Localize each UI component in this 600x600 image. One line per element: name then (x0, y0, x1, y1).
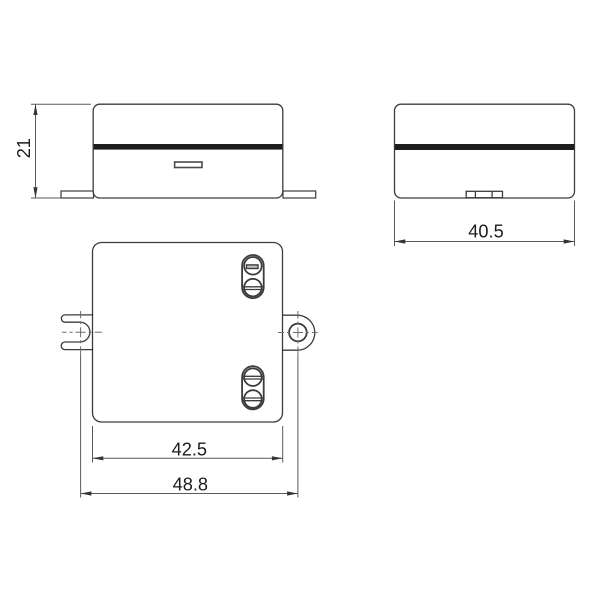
svg-text:48.8: 48.8 (173, 474, 208, 494)
svg-text:42.5: 42.5 (172, 440, 207, 460)
svg-text:21: 21 (14, 138, 34, 158)
svg-text:40.5: 40.5 (468, 221, 503, 241)
